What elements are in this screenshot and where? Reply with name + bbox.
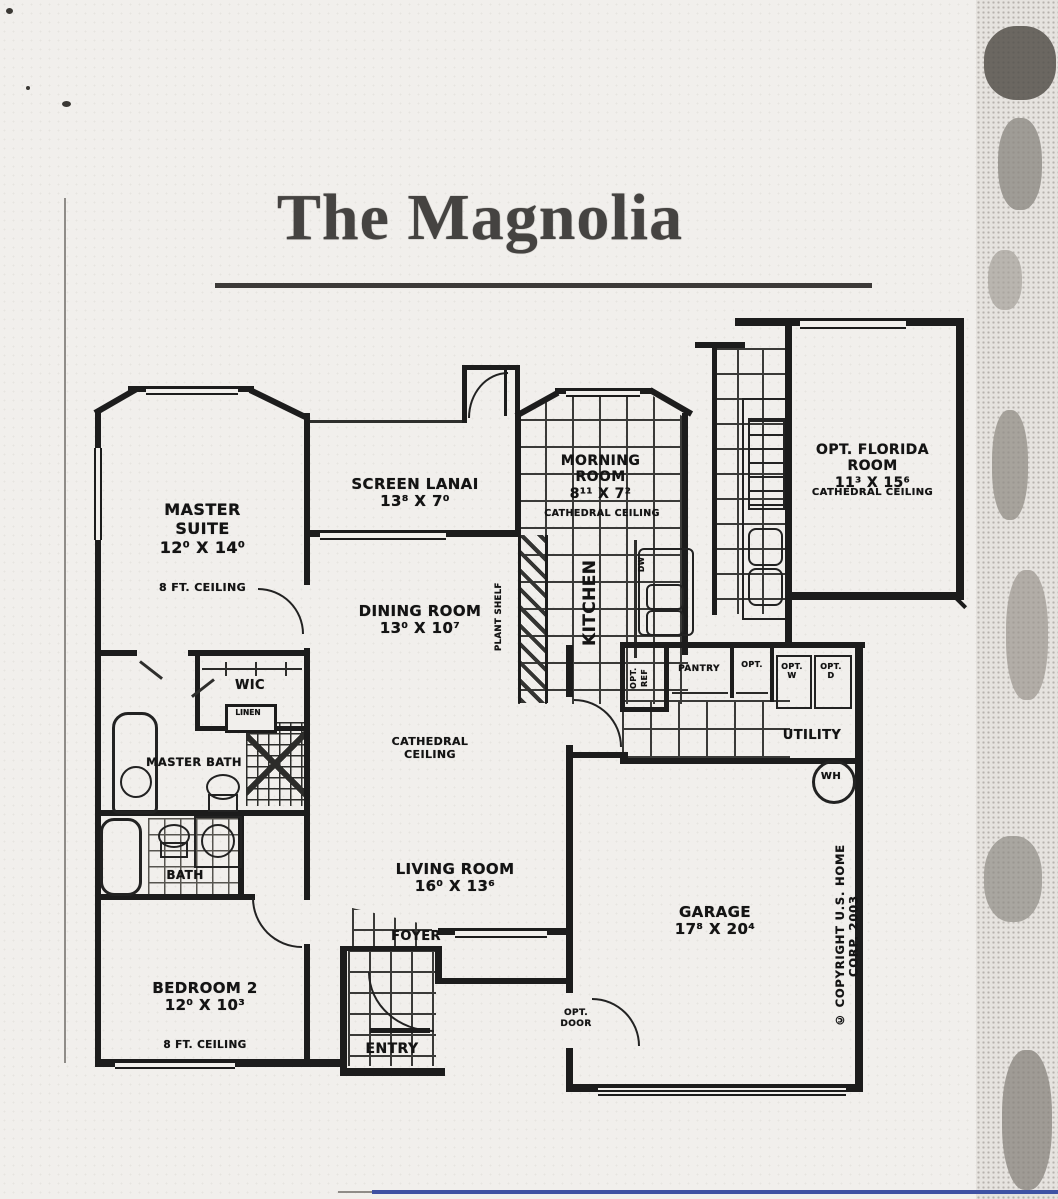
room-label-garage: GARAGE 17⁸ X 20⁴ <box>650 886 780 957</box>
wall <box>620 642 865 648</box>
scan-blob <box>1002 1050 1052 1190</box>
kitchen-sink-icon <box>646 584 684 610</box>
room-ceiling: 8 FT. CEILING <box>135 582 270 595</box>
front-door-leaf <box>370 1028 430 1033</box>
room-name: MORNING ROOM <box>561 453 641 486</box>
title-underline <box>215 283 872 288</box>
scan-blob <box>984 836 1042 922</box>
room-name: DINING ROOM <box>359 602 482 620</box>
opt-dryer-label: OPT. D <box>815 662 847 681</box>
door-leaf <box>504 370 507 416</box>
closet-shelf <box>736 692 768 694</box>
room-name: SCREEN LANAI <box>351 475 478 493</box>
wall <box>620 707 669 712</box>
room-label-dining-room: DINING ROOM 13⁰ X 10⁷ <box>350 585 490 656</box>
room-name: GARAGE <box>679 903 751 921</box>
slider-door <box>320 531 446 540</box>
wall <box>435 978 573 984</box>
closet-rod <box>202 668 302 670</box>
hanger-tick <box>225 662 227 676</box>
pantry-shelf <box>672 692 728 694</box>
ceiling-label-morning: CATHEDRAL CEILING <box>528 508 676 519</box>
scan-line <box>64 198 66 1063</box>
door-arc <box>468 372 508 418</box>
opt-washer-label: OPT. W <box>777 662 807 681</box>
bathtub-icon <box>100 818 142 896</box>
wall <box>462 365 467 423</box>
hanger-tick <box>255 662 257 676</box>
scan-blob <box>984 26 1056 100</box>
wall <box>515 415 521 537</box>
room-dims: 17⁸ X 20⁴ <box>650 921 780 939</box>
wall <box>340 946 347 1076</box>
room-label-screen-lanai: SCREEN LANAI 13⁸ X 7⁰ <box>335 458 495 529</box>
linen-label: LINEN <box>227 709 269 718</box>
scanned-floor-plan-page: The Magnolia <box>0 0 1058 1199</box>
kitchen-sink-icon <box>646 610 684 636</box>
wall <box>304 815 310 900</box>
tile-shower <box>246 722 304 806</box>
room-dims: 16⁰ X 13⁶ <box>380 878 530 896</box>
room-dims: 8¹¹ X 7² <box>538 486 663 503</box>
hanger-tick <box>285 662 287 676</box>
room-label-bedroom-2: BEDROOM 2 12⁰ X 10³ 8 FT. CEILING <box>130 962 280 1069</box>
room-label-wic: WIC <box>222 678 278 693</box>
sink-icon <box>201 824 235 858</box>
opt-door-label: OPT. DOOR <box>548 1008 604 1029</box>
scan-line <box>338 1191 372 1193</box>
wall <box>340 1068 445 1076</box>
room-label-bath: BATH <box>152 868 218 882</box>
plant-shelf-hatch <box>518 535 548 703</box>
room-name: BEDROOM 2 <box>152 979 257 997</box>
scan-edge-blue-line <box>372 1190 1058 1194</box>
dishwasher-label: DW <box>638 550 647 578</box>
window <box>566 389 640 397</box>
window <box>455 929 547 938</box>
wall <box>566 752 628 758</box>
scan-speck <box>62 101 71 107</box>
toilet-tank <box>160 842 188 858</box>
room-label-entry: ENTRY <box>350 1041 434 1058</box>
wall <box>620 642 625 712</box>
wall <box>95 650 137 656</box>
water-heater-label: WH <box>812 771 850 783</box>
opt-closet-label: OPT. <box>734 660 770 669</box>
scan-blob <box>1006 570 1048 700</box>
window <box>146 387 238 395</box>
wall <box>712 345 717 615</box>
wall <box>566 745 573 937</box>
garage-door <box>598 1086 846 1096</box>
wall <box>304 648 310 818</box>
scan-blob <box>988 250 1022 310</box>
pantry-label: PANTRY <box>668 664 730 675</box>
wall-bay-angle <box>94 386 139 415</box>
wall <box>340 946 442 951</box>
window <box>94 448 102 540</box>
wall <box>566 937 573 993</box>
wall <box>785 318 792 600</box>
opt-ref-label: OPT. REF <box>628 652 650 704</box>
room-dims: 13⁸ X 7⁰ <box>335 493 495 511</box>
screen-wall <box>310 420 465 423</box>
room-dims: 12⁰ X 14⁰ <box>135 539 270 558</box>
wall <box>462 365 520 370</box>
room-name: LIVING ROOM <box>396 860 515 878</box>
room-label-kitchen: KITCHEN <box>580 545 600 660</box>
room-dims: 12⁰ X 10³ <box>130 997 280 1015</box>
room-label-foyer: FOYER <box>380 929 452 944</box>
wall <box>304 944 310 1065</box>
copyright-text: © COPYRIGHT U.S. HOME CORP. 2003 <box>834 828 861 1044</box>
wall <box>785 592 964 600</box>
wall-bay-angle <box>249 387 309 420</box>
appliance-icon <box>748 528 783 566</box>
plant-shelf-label: PLANT SHELF <box>494 578 504 656</box>
ceiling-label-florida: CATHEDRAL CEILING <box>800 487 945 499</box>
room-label-morning-room: MORNING ROOM 8¹¹ X 7² <box>538 436 663 519</box>
wall <box>304 413 310 585</box>
window <box>800 319 906 329</box>
room-label-utility: UTILITY <box>762 728 862 743</box>
wall <box>435 946 442 980</box>
wall <box>730 642 734 698</box>
room-label-master-suite: MASTER SUITE 12⁰ X 14⁰ 8 FT. CEILING <box>135 482 270 614</box>
ceiling-label-living: CATHEDRAL CEILING <box>365 736 495 762</box>
room-ceiling: 8 FT. CEILING <box>130 1039 280 1051</box>
wall <box>566 645 573 697</box>
wall <box>785 592 792 647</box>
room-label-master-bath: MASTER BATH <box>138 756 250 770</box>
scan-speck <box>26 86 30 90</box>
door-leaf <box>139 660 163 680</box>
sink-icon <box>120 766 152 798</box>
wall <box>770 642 774 702</box>
toilet-tank <box>208 794 238 812</box>
room-label-living-room: LIVING ROOM 16⁰ X 13⁶ <box>380 843 530 914</box>
wall <box>695 342 745 348</box>
wall <box>956 318 964 600</box>
wall <box>188 650 310 656</box>
plan-title: The Magnolia <box>200 180 760 256</box>
scan-speck <box>6 8 13 14</box>
door-arc <box>574 699 622 747</box>
wall <box>664 642 669 712</box>
room-name: OPT. FLORIDA ROOM <box>816 442 929 475</box>
room-name: MASTER SUITE <box>164 500 240 538</box>
scan-blob <box>992 410 1028 520</box>
appliance-icon <box>748 568 783 606</box>
door-arc <box>252 898 302 948</box>
room-dims: 13⁰ X 10⁷ <box>350 620 490 638</box>
scan-blob <box>998 118 1042 210</box>
cabinet <box>748 418 785 510</box>
